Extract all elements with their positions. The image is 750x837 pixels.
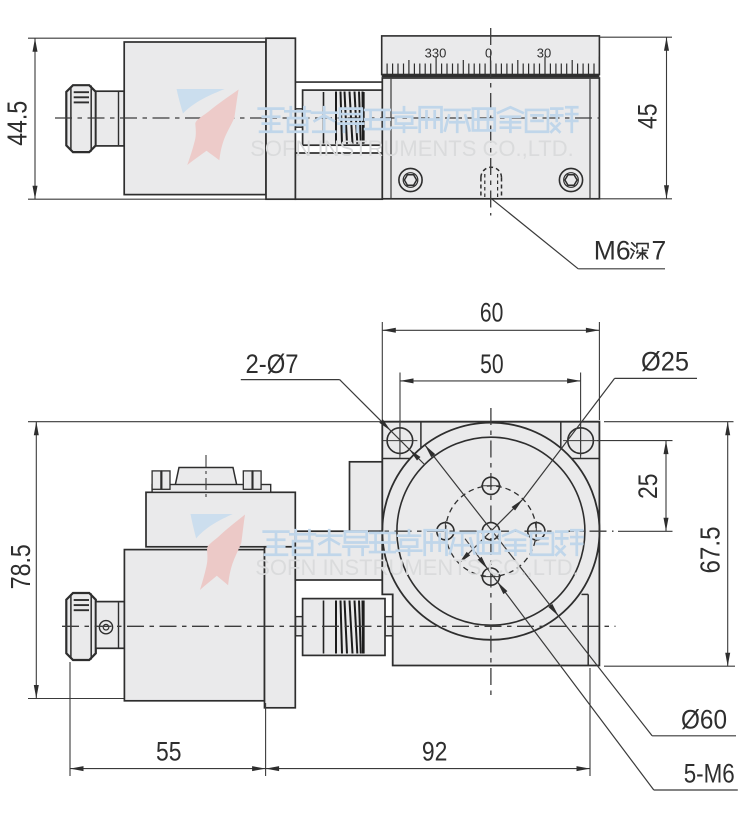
svg-text:330: 330 [425, 46, 447, 61]
svg-text:25: 25 [633, 473, 663, 499]
svg-text:45: 45 [633, 103, 663, 129]
svg-text:67.5: 67.5 [695, 527, 726, 574]
svg-text:2-Ø7: 2-Ø7 [246, 349, 299, 379]
svg-text:5-M6: 5-M6 [684, 759, 735, 789]
svg-text:Ø25: Ø25 [641, 347, 689, 377]
svg-text:M6: M6 [594, 236, 631, 266]
svg-text:Ø60: Ø60 [681, 705, 727, 735]
svg-text:92: 92 [422, 737, 448, 767]
svg-text:7: 7 [652, 236, 667, 266]
svg-text:30: 30 [537, 46, 551, 61]
svg-text:55: 55 [156, 737, 182, 767]
svg-text:SOFN INSTRUMENTS CO.,LTD.: SOFN INSTRUMENTS CO.,LTD. [250, 136, 574, 161]
svg-text:60: 60 [480, 298, 504, 328]
svg-text:SOFN INSTRUMENTS CO.,LTD.: SOFN INSTRUMENTS CO.,LTD. [255, 555, 579, 580]
svg-text:44.5: 44.5 [2, 101, 33, 146]
svg-text:78.5: 78.5 [5, 544, 36, 589]
svg-text:50: 50 [480, 349, 504, 379]
